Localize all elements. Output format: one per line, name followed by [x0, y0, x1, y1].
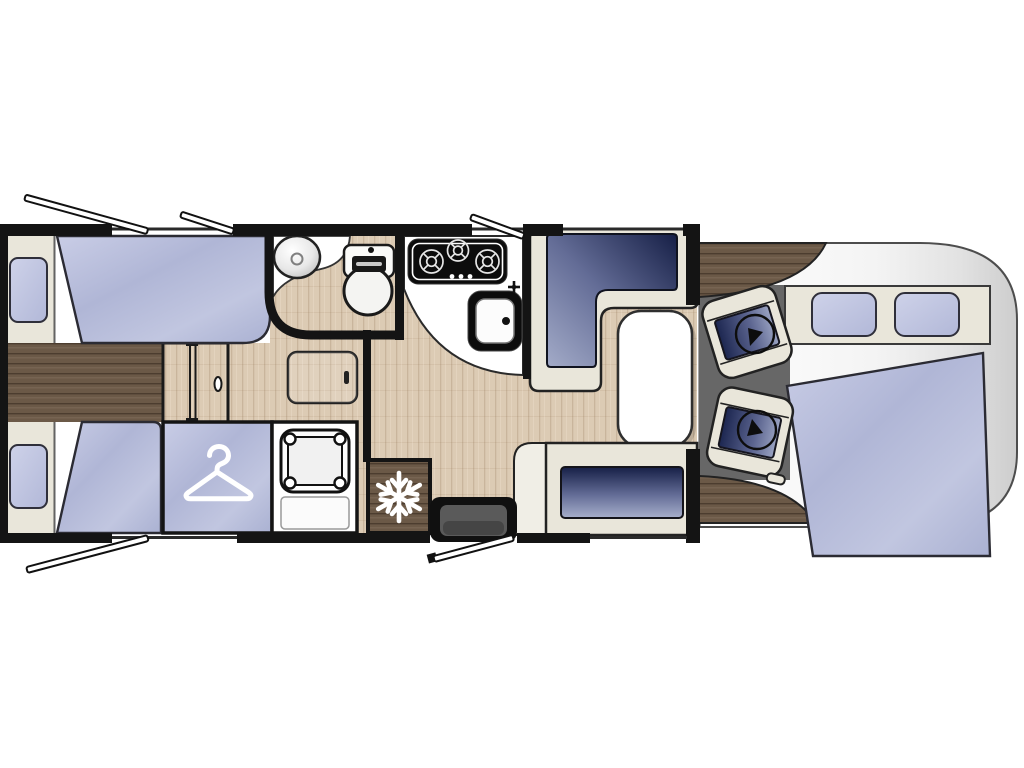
- bench-side-panel: [514, 443, 546, 535]
- single-bed-top: [57, 236, 270, 343]
- floor-plan-canvas: [0, 0, 1024, 768]
- pillow: [895, 293, 959, 336]
- bedroom-walkway: [8, 343, 163, 422]
- wardrobe: [163, 422, 272, 533]
- fridge: [368, 460, 430, 533]
- bathroom-kitchen-wall: [395, 228, 404, 340]
- pillow: [10, 258, 47, 322]
- interior-door-panel: [288, 352, 357, 403]
- window-line: [563, 228, 683, 231]
- corridor-wall: [363, 330, 371, 462]
- front-bed-mattress: [787, 353, 990, 556]
- washbasin: [274, 236, 320, 278]
- window-line: [590, 536, 687, 539]
- shelf-edge-line: [54, 422, 56, 533]
- floor-plan-svg: [0, 0, 1024, 768]
- bedside-cabinet: [163, 341, 228, 423]
- front-drop-down-bed: [785, 286, 990, 556]
- pillow: [812, 293, 876, 336]
- cabinet-handle: [215, 377, 222, 391]
- kitchen-sink: [468, 281, 522, 351]
- toilet: [344, 245, 394, 315]
- travel-bench-cushion: [561, 467, 683, 518]
- dinette-table: [618, 311, 692, 447]
- door-handle: [344, 371, 349, 384]
- shower-cubicle: [272, 422, 357, 533]
- kitchen-dinette-wall: [523, 228, 531, 379]
- cab: [699, 243, 990, 556]
- gas-hob: [408, 239, 507, 284]
- pillow: [10, 445, 47, 508]
- entrance-step: [430, 497, 517, 542]
- shelf-edge-line: [54, 236, 56, 343]
